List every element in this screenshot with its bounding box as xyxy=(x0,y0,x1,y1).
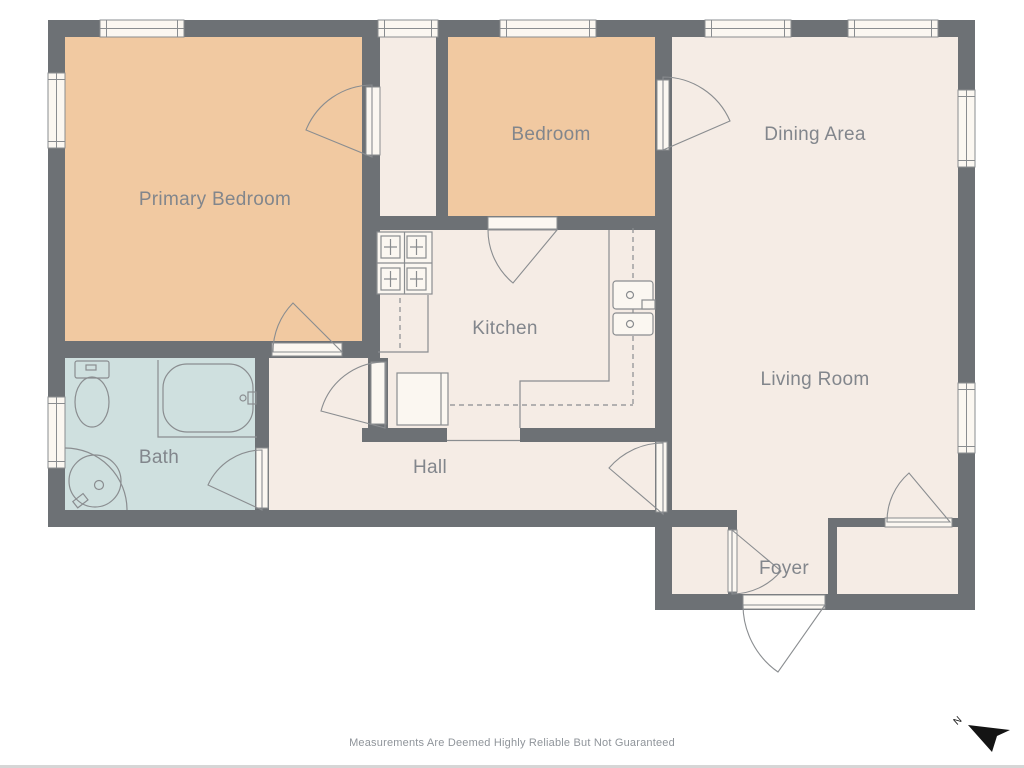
window xyxy=(500,20,596,37)
room-label-kitchen: Kitchen xyxy=(472,318,537,339)
window xyxy=(958,383,975,453)
room-label-bedroom: Bedroom xyxy=(511,124,590,145)
floorplan-page: Primary Bedroom Bedroom Dining Area Kitc… xyxy=(0,0,1024,768)
window xyxy=(705,20,791,37)
sink-icon xyxy=(613,281,655,335)
door-entry xyxy=(743,595,825,672)
stove-icon xyxy=(377,232,432,294)
door-leaf xyxy=(371,362,386,424)
wall-segment xyxy=(655,510,737,527)
room-label-dining-area: Dining Area xyxy=(764,124,866,145)
door-leaf xyxy=(488,217,557,229)
window xyxy=(378,20,438,37)
north-arrow-icon: N xyxy=(952,715,1010,752)
wall-segment xyxy=(520,428,672,442)
room-floor-bath xyxy=(65,358,255,510)
wall-segment xyxy=(436,20,448,230)
floorplan-drawing: Primary Bedroom Bedroom Dining Area Kitc… xyxy=(0,0,1024,768)
window xyxy=(48,397,65,468)
window xyxy=(48,73,65,148)
window xyxy=(958,90,975,167)
room-label-bath: Bath xyxy=(139,447,179,468)
door-leaf xyxy=(743,595,825,609)
room-label-primary-bedroom: Primary Bedroom xyxy=(139,189,291,210)
wall-segment xyxy=(828,527,837,594)
door-swing-arc xyxy=(743,605,825,672)
door-leaf xyxy=(272,343,342,356)
refrigerator-icon xyxy=(397,373,448,425)
room-label-living-room: Living Room xyxy=(761,369,870,390)
room-label-foyer: Foyer xyxy=(759,558,809,579)
door-leaf xyxy=(366,87,380,155)
door-leaf xyxy=(656,442,667,512)
disclaimer-text: Measurements Are Deemed Highly Reliable … xyxy=(349,737,675,749)
window xyxy=(100,20,184,37)
room-label-hall: Hall xyxy=(413,457,447,478)
window xyxy=(848,20,938,37)
north-arrow-label: N xyxy=(952,715,965,728)
wall-segment xyxy=(362,20,380,358)
wall-segment xyxy=(48,510,672,527)
room-floor-foyer xyxy=(672,527,958,594)
